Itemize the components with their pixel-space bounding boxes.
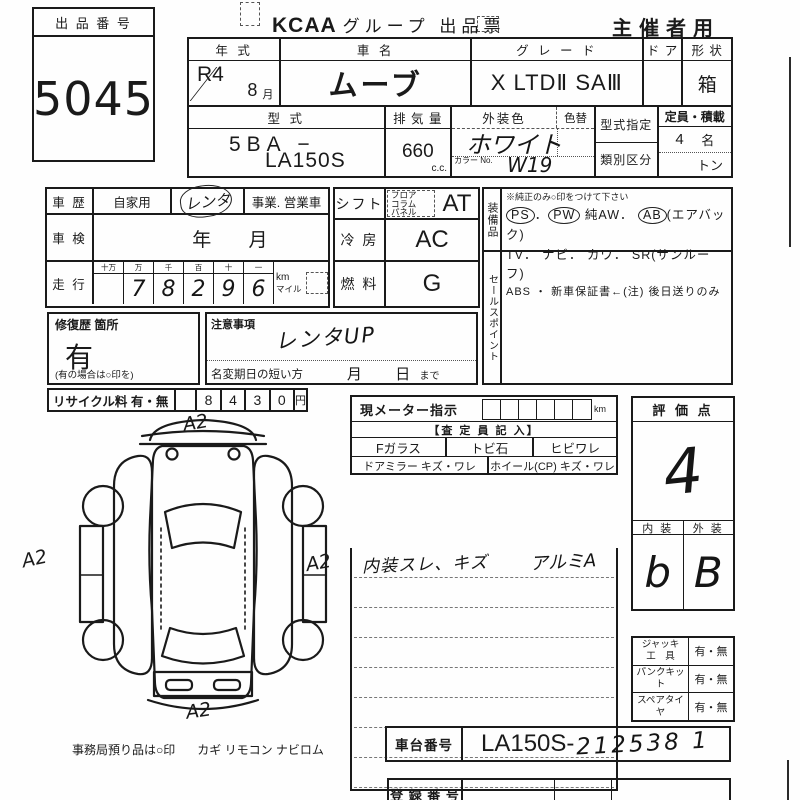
inspection-year-label: 年 [192, 225, 211, 252]
type-cert-label: 型式指定 [596, 107, 657, 143]
mileage-digit-1: 一 6 [244, 262, 274, 304]
mileage-label: 走 行 [47, 262, 94, 304]
lot-number-value: 5045 [34, 37, 153, 160]
left-side-panel [114, 456, 152, 674]
windshield [165, 504, 241, 548]
color-no-value: W19 [507, 153, 552, 177]
vehicle-table: 年 式 R4 8 月 車 名 ムーブ グ レ ー ド X LTDⅡ SAⅢ ド … [187, 37, 733, 178]
sales-point-content [502, 252, 731, 383]
check-wheel: ホイール(CP) キズ・ワレ [489, 457, 616, 474]
jack-tools-value: 有・無 [689, 638, 733, 665]
right-rear-wheel [283, 620, 323, 660]
page-edge-line-top [789, 57, 791, 247]
shift-value: AT [436, 189, 478, 218]
history-rental-cell: レンタ [172, 189, 245, 213]
repair-label: 修復歴 箇所 [55, 316, 192, 333]
cooling-value: AC [386, 220, 478, 260]
exterior-score: B [684, 535, 734, 609]
drivetrain-table: シフト フロア コラム パネル AT 冷 房 AC 燃 料 G [333, 187, 480, 308]
mileage-km-label: km [276, 272, 304, 284]
recycle-fee-box: リサイクル料 有・無 8 4 3 0 円 [47, 388, 308, 412]
sales-point-label: セールスポイント [484, 252, 502, 383]
shift-options: フロア コラム パネル [387, 190, 435, 217]
equipment-ps: PS [506, 207, 535, 224]
rename-suffix: まで [420, 367, 440, 382]
score-value: 4 [628, 417, 738, 525]
equipment-note: ※純正のみ○印をつけて下さい [506, 190, 727, 203]
office-items-text: カギ リモコン ナビロム [197, 741, 324, 758]
caution-value: レンタUP [274, 319, 377, 356]
rename-day: 日 [395, 363, 410, 384]
spare-tire-label: スペアタイヤ [633, 693, 689, 720]
fuel-value: G [386, 262, 478, 306]
accessories-box: ジャッキ 工 具 有・無 パンクキット 有・無 スペアタイヤ 有・無 [631, 636, 735, 722]
history-business: 事業. 営業車 [245, 189, 328, 213]
check-door-mirror: ドアミラー キズ・ワレ [352, 457, 489, 474]
mileage-check-box [306, 272, 328, 294]
rename-label: 名変期日の短い方 [211, 366, 303, 382]
rear-bumper [154, 672, 252, 696]
office-note-text: 事務局預り品は○印 [72, 741, 175, 758]
chassis-number-label: 車台番号 [387, 728, 463, 760]
caution-box: 注意事項 レンタUP 名変期日の短い方 月 日 まで [205, 312, 478, 385]
brand-logo: KCAA [272, 14, 337, 37]
year-value: R4 8 月 [189, 61, 279, 105]
assessor-note-alloy: アルミA [529, 546, 596, 575]
sales-point-box: セールスポイント [482, 252, 733, 385]
assessor-note-interior: 内装スレ、キズ [362, 548, 489, 577]
shape-value: 箱 [683, 61, 731, 105]
stamp-mark-right [477, 16, 499, 32]
rear-window [162, 628, 244, 664]
meter-digit-boxes [482, 399, 592, 420]
chassis-printed: LA150S- [481, 730, 574, 758]
left-mirror [167, 449, 178, 460]
score-box: 評 価 点 4 内 装 外 装 b B [631, 396, 735, 611]
history-label: 車 歴 [47, 189, 94, 213]
interior-score: b [633, 535, 684, 609]
car-body [149, 446, 256, 698]
recycle-label: リサイクル料 有・無 [49, 390, 174, 410]
repair-box: 修復歴 箇所 有 (有の場合は○印を) [47, 312, 200, 385]
year-month-suffix: 月 [262, 86, 273, 102]
class-division-label: 類別区分 [596, 143, 657, 176]
displacement-column: 排 気 量 660 c.c. [386, 107, 453, 176]
inspection-month-label: 月 [248, 225, 267, 252]
exterior-label: 外 装 [684, 521, 734, 534]
mileage-digit-10: 十 9 [214, 262, 244, 304]
history-table: 車 歴 自家用 レンタ 事業. 営業車 車 検 年 月 走 行 十万 万 7 [45, 187, 330, 308]
recycle-blank-cell [174, 390, 195, 410]
recycle-digit-4: 0 [269, 390, 293, 410]
equipment-ab: AB [638, 207, 667, 224]
jack-tools-label: ジャッキ 工 具 [633, 638, 689, 665]
meter-unit: km [594, 404, 606, 414]
mileage-digit-100k: 十万 [94, 262, 124, 304]
equipment-pw: PW [548, 207, 580, 224]
auction-sheet: 出 品 番 号 5045 KCAAグループ 出品票 主催者用 年 式 R4 8 … [0, 0, 800, 800]
mileage-digit-10k: 万 7 [124, 262, 154, 304]
displacement-label: 排 気 量 [386, 107, 451, 129]
check-front-glass: Fガラス [352, 438, 447, 456]
appraiser-header: 【査 定 員 記 入】 [352, 422, 616, 438]
displacement-value: 660 [402, 141, 434, 163]
name-column: 車 名 ムーブ [281, 39, 472, 105]
name-value: ムーブ [281, 61, 470, 105]
capacity-label: 定員・積載 [659, 107, 731, 127]
shift-label: シフト [335, 189, 386, 218]
registration-number-label: 登 録 番 号 [389, 780, 463, 800]
car-diagram [58, 410, 348, 722]
rename-month: 月 [347, 363, 362, 384]
displacement-unit: c.c. [432, 163, 448, 174]
color-change-cell [557, 129, 594, 156]
grade-column: グ レ ー ド X LTDⅡ SAⅢ [472, 39, 644, 105]
mileage-digit-100: 百 2 [184, 262, 214, 304]
grade-value: X LTDⅡ SAⅢ [472, 61, 642, 105]
left-rear-wheel [83, 620, 123, 660]
registration-number-box: 登 録 番 号 [387, 778, 731, 800]
form-title: KCAAグループ 出品票 [272, 12, 505, 38]
model-column: 型 式 5BA − LA150S [189, 107, 386, 176]
name-label: 車 名 [281, 39, 470, 61]
door-label: ド ア [644, 39, 682, 61]
right-front-wheel [283, 486, 323, 526]
equipment-label: 装備品 [484, 189, 502, 250]
chassis-number-value: LA150S- 212538 1 [463, 728, 729, 760]
right-side-panel [254, 456, 292, 674]
capacity-column: 定員・積載 4 名 トン [659, 107, 731, 176]
mileage-mile-label: マイル [276, 284, 304, 294]
model-label: 型 式 [189, 107, 384, 129]
model-value: 5BA − LA150S [189, 129, 384, 176]
mileage-unit-cell: km マイル [274, 262, 304, 304]
inspection-label: 車 検 [47, 215, 94, 260]
year-month: 8 [247, 80, 257, 101]
check-crack: ヒビワレ [534, 438, 616, 456]
capacity-load-unit: トン [659, 153, 731, 176]
year-column: 年 式 R4 8 月 [189, 39, 281, 105]
stamp-mark-left [240, 2, 260, 26]
equipment-content: ※純正のみ○印をつけて下さい PS．PW 純AW． AB(エアバック) TV． … [502, 189, 731, 250]
year-label: 年 式 [189, 39, 279, 61]
puncture-kit-label: パンクキット [633, 666, 689, 693]
equipment-line1: PS．PW 純AW． AB(エアバック) [506, 204, 727, 243]
recycle-digit-1: 8 [195, 390, 219, 410]
model-code: LA150S [265, 149, 346, 173]
displacement-value-cell: 660 c.c. [386, 129, 451, 176]
fuel-label: 燃 料 [335, 262, 386, 306]
type-cert-column: 型式指定 類別区分 [596, 107, 659, 176]
history-private: 自家用 [94, 189, 172, 213]
equipment-box: 装備品 ※純正のみ○印をつけて下さい PS．PW 純AW． AB(エアバック) … [482, 187, 733, 252]
chassis-handwritten: 212538 1 [576, 728, 711, 761]
color-no-label: カラー No. [454, 157, 493, 165]
grade-label: グ レ ー ド [472, 39, 642, 61]
caution-label: 注意事項 [211, 316, 255, 332]
color-column: 外装色 色替 ホワイト カラー No. W19 [452, 107, 596, 176]
damage-mark-rear: A2 [185, 698, 213, 723]
inspection-value-cell: 年 月 [94, 215, 328, 260]
puncture-kit-value: 有・無 [689, 666, 733, 693]
capacity-persons-unit: 名 [701, 130, 714, 149]
door-column: ド ア [644, 39, 684, 105]
recycle-digit-2: 4 [220, 390, 244, 410]
cooling-label: 冷 房 [335, 220, 386, 260]
spare-tire-value: 有・無 [689, 693, 733, 720]
shape-label: 形 状 [683, 39, 731, 61]
capacity-persons: 4 [675, 131, 683, 148]
recycle-unit: 円 [293, 390, 306, 410]
office-note: 事務局預り品は○印 カギ リモコン ナビロム [72, 741, 324, 758]
meter-assessor-box: 現メーター指示 km 【査 定 員 記 入】 Fガラス トビ石 ヒビワレ ドアミ… [350, 395, 618, 475]
damage-mark-right: A2 [304, 550, 333, 576]
left-front-wheel [83, 486, 123, 526]
mileage-digit-1k: 千 8 [154, 262, 184, 304]
color-change-label: 色替 [557, 107, 594, 128]
right-mirror [229, 449, 240, 460]
recycle-digit-3: 3 [244, 390, 268, 410]
shape-column: 形 状 箱 [683, 39, 731, 105]
lot-number-label: 出 品 番 号 [34, 9, 153, 37]
repair-note: (有の場合は○印を) [55, 367, 134, 381]
damage-mark-left: A2 [20, 546, 49, 573]
chassis-number-box: 車台番号 LA150S- 212538 1 [385, 726, 731, 762]
meter-label: 現メーター指示 [352, 400, 482, 419]
damage-mark-front: A2 [181, 410, 210, 436]
page-edge-line-bottom [787, 760, 789, 800]
lot-number-box: 出 品 番 号 5045 [32, 7, 155, 162]
door-value [644, 61, 682, 105]
left-door-panel [80, 526, 103, 622]
check-stone-chip: トビ石 [447, 438, 534, 456]
